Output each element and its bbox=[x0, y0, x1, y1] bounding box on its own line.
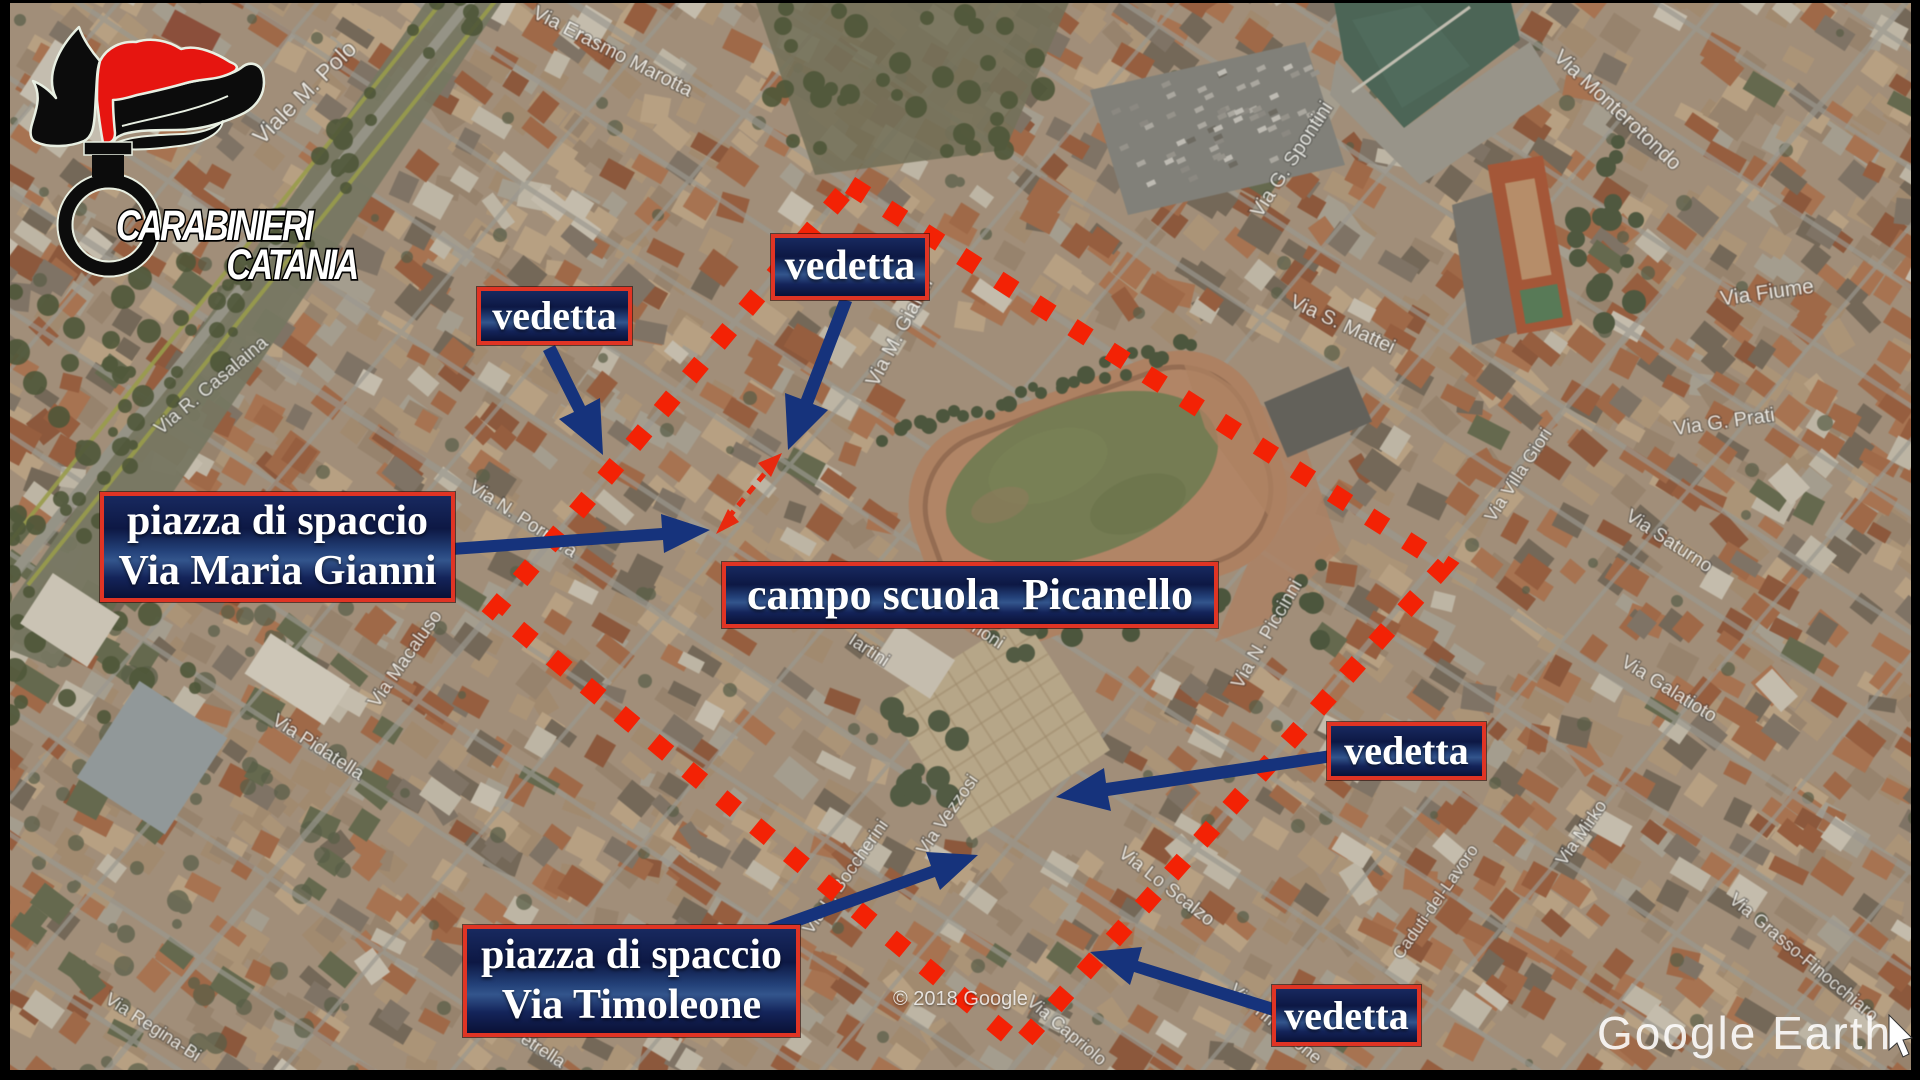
svg-text:CATANIA: CATANIA bbox=[226, 241, 359, 288]
